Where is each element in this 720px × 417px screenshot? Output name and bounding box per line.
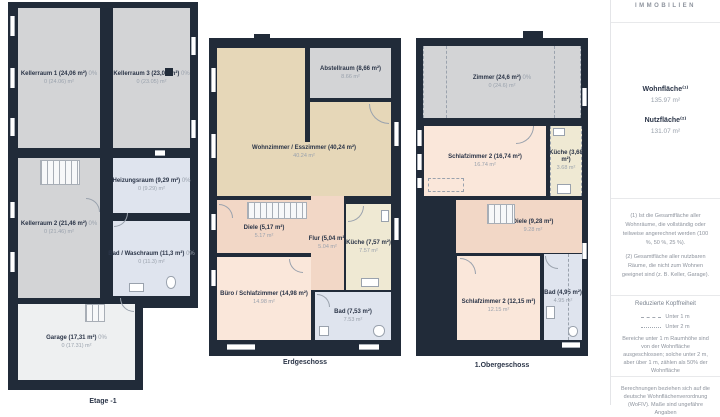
note-wohnflaeche: (1) Ist die Gesamtfläche aller Wohnräume… xyxy=(611,212,720,248)
room-area: 0 (24.6) m² xyxy=(401,83,604,90)
room-percent: 0% xyxy=(523,75,532,81)
floor-caption-erdgeschoss: Erdgeschoss xyxy=(209,359,401,366)
kitchen-appliance xyxy=(381,210,389,222)
wohnflaeche-value: 135.97 m² xyxy=(611,97,720,104)
room-bad-waschraum: Bad / Waschraum (11,3 m²) 0% 0 (11.3) m² xyxy=(113,221,190,296)
headroom-title: Reduzierte Kopffreiheit xyxy=(611,301,720,307)
legend-under-2m: Unter 2 m xyxy=(611,324,720,330)
room-area: 14.98 m² xyxy=(203,299,325,306)
info-sidebar: IMMOBILIEN Wohnfläche⁽¹⁾ 135.97 m² Nutzf… xyxy=(610,0,720,405)
outside-area xyxy=(143,308,198,390)
window-marker xyxy=(10,16,15,36)
window-marker xyxy=(155,150,165,156)
room-label: Kellerraum 2 (21,46 m²) 0% 0 (21.46) m² xyxy=(6,221,113,236)
legend-under-1m: Unter 1 m xyxy=(611,314,720,320)
room-label: Küche (7,57 m²) 7.57 m² xyxy=(339,240,398,255)
room-title: Büro / Schlafzimmer (14,98 m²) xyxy=(220,291,308,297)
room-label: Kellerraum 3 (23,05 m²) 0% 0 (23.05) m² xyxy=(101,71,201,86)
floorplan-obergeschoss: Zimmer (24,6 m²) 0% 0 (24.6) m² Schlafzi… xyxy=(416,38,588,356)
room-area: 5.04 m² xyxy=(306,244,349,251)
nutzflaeche-label: Nutzfläche⁽²⁾ xyxy=(611,116,720,124)
room-area: 9.28 m² xyxy=(451,227,615,234)
floorplan-erdgeschoss: Wohnzimmer / Esszimmer (40,24 m²) 40.24 … xyxy=(209,38,401,356)
window-marker xyxy=(211,270,216,286)
room-area: 3.68 m² xyxy=(547,165,586,172)
window-marker xyxy=(359,344,379,350)
stairs xyxy=(40,160,80,185)
room-label: Schlafzimmer 2 (16,74 m²) 16.74 m² xyxy=(406,154,565,169)
toilet xyxy=(373,325,385,337)
headroom-zone xyxy=(428,178,464,192)
room-title: Bad (7,53 m²) xyxy=(334,309,372,315)
room-title: Schlafzimmer 2 (12,15 m²) xyxy=(462,299,536,305)
window-marker xyxy=(417,178,422,188)
room-title: Bad (4,95 m²) xyxy=(544,290,582,296)
window-marker xyxy=(394,218,399,240)
divider xyxy=(611,198,720,199)
window-marker xyxy=(582,243,587,259)
room-label: Diele (9,28 m²) 9.28 m² xyxy=(423,219,615,234)
window-marker xyxy=(10,252,15,272)
floor-caption-untergeschoss: Etage -1 xyxy=(8,398,198,405)
brand-logo-text: IMMOBILIEN xyxy=(611,3,720,9)
window-marker xyxy=(211,214,216,230)
room-area: 0 (23.05) m² xyxy=(101,79,201,86)
room-label: Heizungsraum (9,29 m²) 0% 0 (9.29) m² xyxy=(101,178,201,193)
room-label: Diele (5,17 m²) 5.17 m² xyxy=(203,225,325,240)
kitchen-sink xyxy=(557,184,571,194)
headroom-text: Bereiche unter 1 m Raumhöhe sind von der… xyxy=(611,335,720,375)
room-label: Flur (5,04 m²) 5.04 m² xyxy=(306,236,349,251)
stairs xyxy=(85,304,105,322)
room-area: 0 (24.06) m² xyxy=(6,79,113,86)
room-percent: 0% xyxy=(181,71,190,77)
floor-caption-obergeschoss: 1.Obergeschoss xyxy=(416,362,588,369)
room-label: Schlafzimmer 2 (12,15 m²) 12.15 m² xyxy=(445,299,553,314)
room-label: Abstellraum (8,66 m²) 8.66 m² xyxy=(298,66,403,81)
room-title: Zimmer (24,6 m²) xyxy=(473,75,521,81)
room-area: 7.57 m² xyxy=(339,248,398,255)
room-label: Wohnzimmer / Esszimmer (40,24 m²) 40.24 … xyxy=(191,145,417,160)
room-title: Garage (17,31 m²) xyxy=(46,335,96,341)
legend-label: Unter 1 m xyxy=(665,314,689,320)
room-title: Schlafzimmer 2 (16,74 m²) xyxy=(448,154,522,160)
window-marker xyxy=(191,120,196,138)
room-title: Abstellraum (8,66 m²) xyxy=(320,66,381,72)
room-title: Flur (5,04 m²) xyxy=(309,236,347,242)
window-marker xyxy=(582,88,587,106)
window-marker xyxy=(211,68,216,92)
room-area: 7.53 m² xyxy=(304,317,403,324)
room-label: Zimmer (24,6 m²) 0% 0 (24.6) m² xyxy=(401,75,604,90)
room-title: Heizungsraum (9,29 m²) xyxy=(112,178,180,184)
room-percent: 0% xyxy=(182,178,191,184)
window-marker xyxy=(191,37,196,55)
stairs xyxy=(247,202,307,219)
room-label: Küche (3,68 m²) 3.68 m² xyxy=(547,150,586,172)
room-area: 16.74 m² xyxy=(406,162,565,169)
window-marker xyxy=(10,68,15,88)
room-label: Bad / Waschraum (11,3 m²) 0% 0 (11.3) m² xyxy=(101,251,201,266)
headroom-line xyxy=(554,46,555,118)
window-marker xyxy=(10,202,15,218)
dotted-line-icon xyxy=(641,327,661,328)
toilet xyxy=(568,326,578,337)
floorplan-untergeschoss: Kellerraum 1 (24,06 m²) 0% 0 (24.06) m² … xyxy=(8,2,198,390)
divider xyxy=(611,376,720,377)
room-area: 12.15 m² xyxy=(445,307,553,314)
room-percent: 0% xyxy=(98,335,107,341)
wohnflaeche-label: Wohnfläche⁽¹⁾ xyxy=(611,85,720,93)
legend-label: Unter 2 m xyxy=(665,324,689,330)
room-heizungsraum: Heizungsraum (9,29 m²) 0% 0 (9.29) m² xyxy=(113,158,190,213)
window-marker xyxy=(394,122,399,146)
room-percent: 0% xyxy=(186,251,195,257)
room-area: 0 (11.3) m² xyxy=(101,259,201,266)
washbasin xyxy=(129,283,144,292)
note-nutzflaeche: (2) Gesamtfläche aller nutzbaren Räume, … xyxy=(611,253,720,280)
room-kellerraum-1: Kellerraum 1 (24,06 m²) 0% 0 (24.06) m² xyxy=(18,8,100,148)
furniture-block xyxy=(165,68,173,76)
room-title: Diele (9,28 m²) xyxy=(513,219,554,225)
room-diele-og: Diele (9,28 m²) 9.28 m² xyxy=(456,200,582,253)
wall xyxy=(310,98,391,102)
dormer xyxy=(523,31,543,39)
divider xyxy=(611,295,720,296)
window-marker xyxy=(211,134,216,158)
washbasin xyxy=(319,326,329,336)
window-marker xyxy=(227,344,255,350)
window-marker xyxy=(10,118,15,136)
room-title: Küche (7,57 m²) xyxy=(346,240,391,246)
room-percent: 0% xyxy=(89,221,98,227)
washbasin xyxy=(546,306,555,319)
stairs xyxy=(487,204,515,224)
room-area: 4.95 m² xyxy=(538,298,587,305)
room-flur: Flur (5,04 m²) 5.04 m² xyxy=(311,196,344,290)
nutzflaeche-value: 131.07 m² xyxy=(611,128,720,135)
room-title: Kellerraum 1 (24,06 m²) xyxy=(21,71,87,77)
room-label: Büro / Schlafzimmer (14,98 m²) 14.98 m² xyxy=(203,291,325,306)
room-title: Bad / Waschraum (11,3 m²) xyxy=(108,251,184,257)
toilet xyxy=(166,276,176,289)
chimney xyxy=(254,34,270,39)
room-label: Kellerraum 1 (24,06 m²) 0% 0 (24.06) m² xyxy=(6,71,113,86)
room-area: 0 (17.31) m² xyxy=(0,343,152,350)
headroom-line xyxy=(446,46,447,118)
window-marker xyxy=(417,154,422,170)
room-percent: 0% xyxy=(89,71,98,77)
dashed-line-icon xyxy=(641,317,661,318)
room-title: Wohnzimmer / Esszimmer (40,24 m²) xyxy=(252,145,356,151)
room-area: 5.17 m² xyxy=(203,233,325,240)
room-label: Bad (7,53 m²) 7.53 m² xyxy=(304,309,403,324)
room-label: Bad (4,95 m²) 4.95 m² xyxy=(538,290,587,305)
room-area: 8.66 m² xyxy=(298,74,403,81)
room-area: 40.24 m² xyxy=(191,153,417,160)
room-area: 0 (9.29) m² xyxy=(101,186,201,193)
room-title: Küche (3,68 m²) xyxy=(549,150,583,163)
footer-disclaimer: Berechnungen beziehen sich auf die deuts… xyxy=(611,385,720,417)
cooktop xyxy=(553,128,565,136)
room-title: Diele (5,17 m²) xyxy=(244,225,285,231)
window-marker xyxy=(562,342,580,348)
room-area: 0 (21.46) m² xyxy=(6,229,113,236)
room-abstellraum: Abstellraum (8,66 m²) 8.66 m² xyxy=(310,48,391,98)
room-label: Garage (17,31 m²) 0% 0 (17.31) m² xyxy=(0,335,152,350)
room-kellerraum-3: Kellerraum 3 (23,05 m²) 0% 0 (23.05) m² xyxy=(113,8,190,148)
room-garage: Garage (17,31 m²) 0% 0 (17.31) m² xyxy=(18,304,135,380)
divider xyxy=(611,22,720,23)
cooktop xyxy=(361,278,379,287)
room-title: Kellerraum 2 (21,46 m²) xyxy=(21,221,87,227)
window-marker xyxy=(417,130,422,146)
